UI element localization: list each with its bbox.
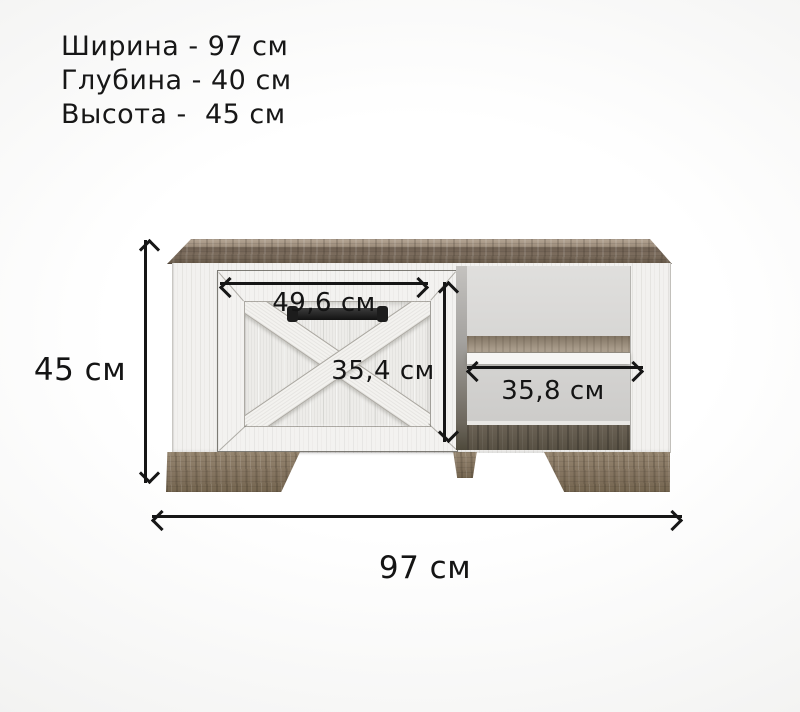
overall-height-arrow [144, 240, 147, 483]
door-width-label: 49,6 см [258, 288, 390, 318]
left-foot [166, 452, 300, 492]
furniture-dimensions-diagram: Ширина - 97 см Глубина - 40 см Высота - … [0, 0, 800, 712]
overall-height-label: 45 см [30, 352, 130, 388]
niche-width-label: 35,8 см [487, 376, 619, 406]
specs-block: Ширина - 97 см Глубина - 40 см Высота - … [61, 30, 292, 132]
overall-width-label: 97 см [350, 550, 500, 586]
spec-depth-line: Глубина - 40 см [61, 64, 292, 98]
center-leg [451, 452, 479, 478]
door-width-arrow [220, 282, 428, 285]
compartment-floor [467, 425, 630, 450]
right-foot [544, 452, 670, 492]
spec-width-line: Ширина - 97 см [61, 30, 292, 64]
cabinet-top-board [167, 239, 672, 264]
open-compartment [467, 266, 631, 450]
niche-width-arrow [467, 366, 643, 369]
shelf-top-surface [467, 336, 630, 352]
door-height-label: 35,4 см [317, 356, 449, 386]
door-miter-line [219, 424, 247, 451]
spec-height-line: Высота - 45 см [61, 98, 292, 132]
shelf-front-edge [467, 352, 630, 364]
door-niche-divider-shadow [456, 266, 467, 450]
overall-width-arrow [152, 515, 682, 518]
